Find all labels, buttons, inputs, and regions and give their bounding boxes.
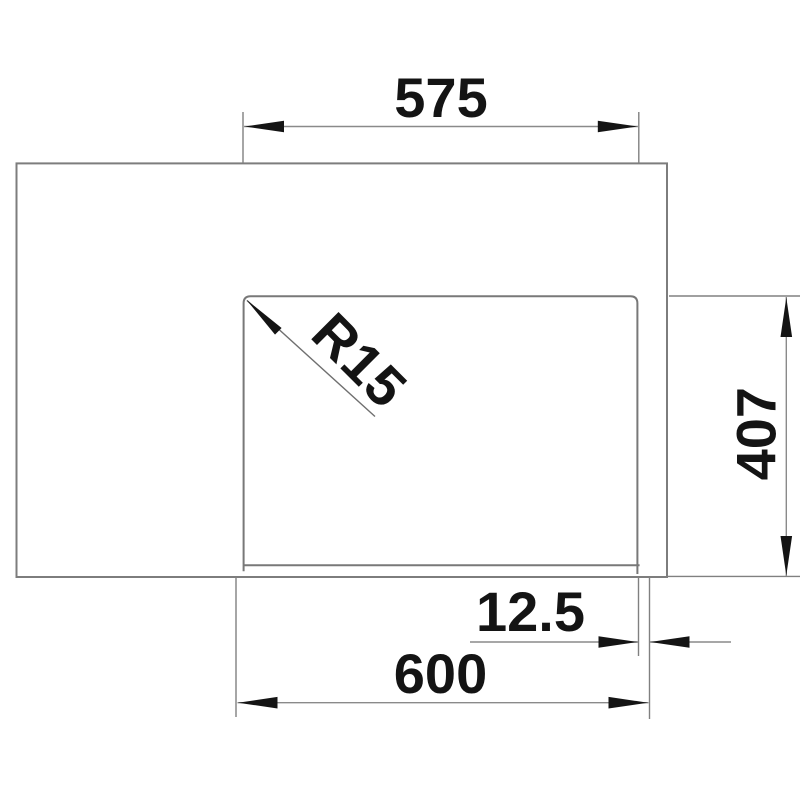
svg-text:600: 600 <box>394 642 487 705</box>
svg-text:575: 575 <box>394 66 487 129</box>
svg-text:12.5: 12.5 <box>476 580 585 643</box>
svg-text:407: 407 <box>725 387 788 480</box>
